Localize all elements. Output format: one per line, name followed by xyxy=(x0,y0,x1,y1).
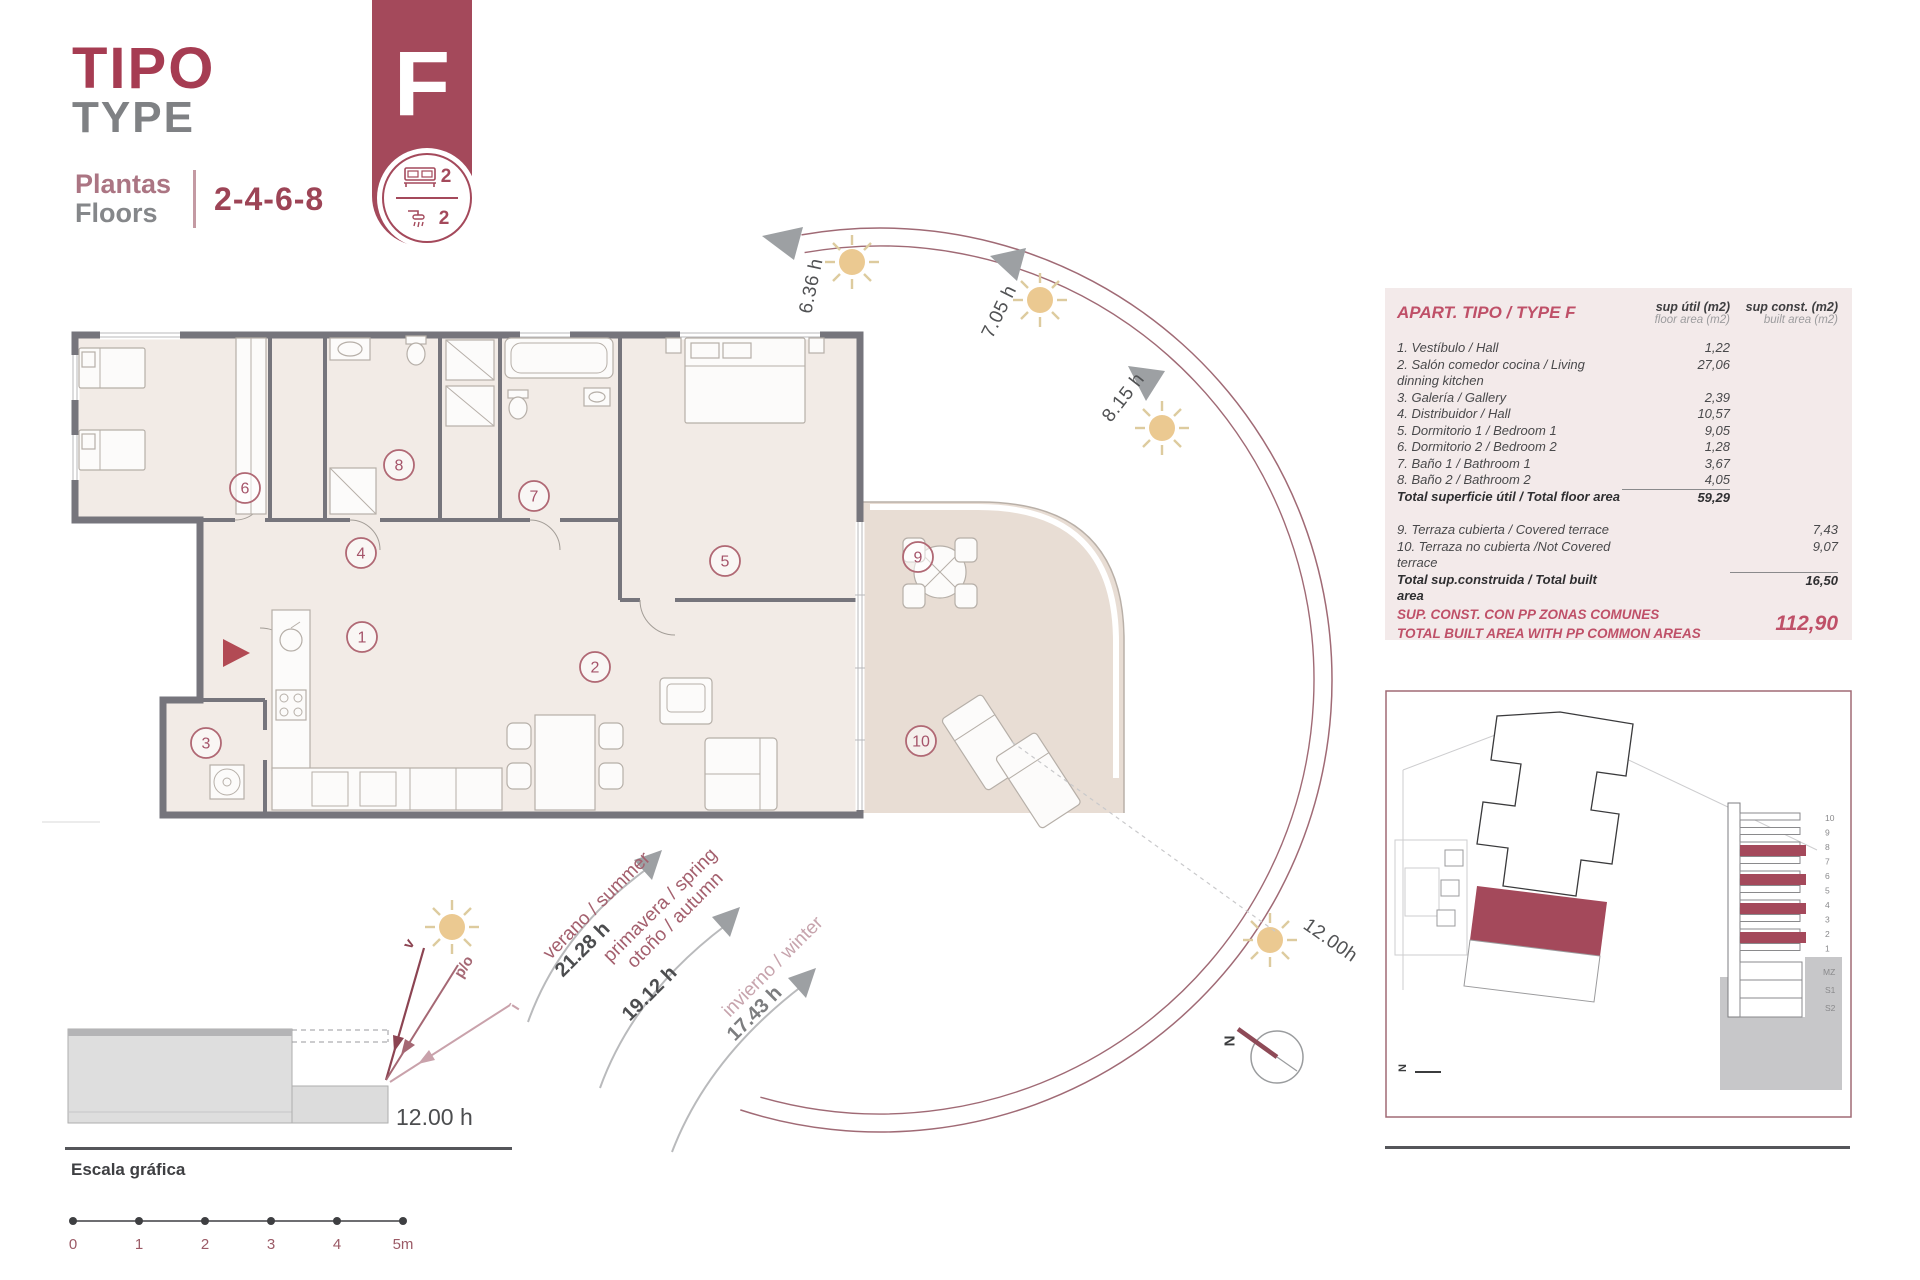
type-badge-letter: F xyxy=(372,38,472,130)
terrace-glazing xyxy=(855,522,865,810)
floor-label: 8 xyxy=(1825,842,1830,852)
floor-area-column-header: sup útil (m2) floor area (m2) xyxy=(1622,300,1730,326)
bathrooms-count: 2 xyxy=(439,208,450,230)
floor-label: 7 xyxy=(1825,857,1830,867)
podium-levels xyxy=(1740,962,1802,1017)
site-north-label: N xyxy=(1397,1064,1409,1072)
floors-label: Plantas Floors xyxy=(75,170,171,227)
floor-label: S1 xyxy=(1825,985,1836,995)
sun-icon xyxy=(1243,913,1297,967)
row-label: Total sup.construida / Total built area xyxy=(1397,572,1622,605)
table-row: 8. Baño 2 / Bathroom 24,05 xyxy=(1397,472,1838,489)
scale-tick: 5m xyxy=(393,1236,414,1253)
room-number: 10 xyxy=(912,734,930,751)
floor-label: 6 xyxy=(1825,871,1830,881)
projection-dashes xyxy=(292,1030,388,1042)
floor-label: 9 xyxy=(1825,828,1830,838)
room-label: 9 xyxy=(903,542,933,572)
floors-value: 2-4-6-8 xyxy=(214,181,324,218)
row-label: 8. Baño 2 / Bathroom 2 xyxy=(1397,472,1622,489)
table-row: 2. Salón comedor cocina / Living dinning… xyxy=(1397,357,1838,390)
common-areas-label-en: TOTAL BUILT AREA WITH PP COMMON AREAS xyxy=(1397,624,1775,644)
built-area-column-header: sup const. (m2) built area (m2) xyxy=(1730,300,1838,326)
shower-icon xyxy=(405,208,435,230)
compass-circle xyxy=(1251,1031,1303,1083)
row-label: 3. Galería / Gallery xyxy=(1397,390,1622,407)
row-label: 2. Salón comedor cocina / Living dinning… xyxy=(1397,357,1622,390)
table-row: 4. Distribuidor / Hall10,57 xyxy=(1397,406,1838,423)
area-table-header: APART. TIPO / TYPE F sup útil (m2) floor… xyxy=(1397,300,1838,326)
floor-label: 5 xyxy=(1825,886,1830,896)
table-row: 9. Terraza cubierta / Covered terrace7,4… xyxy=(1397,522,1838,539)
row-label: 10. Terraza no cubierta /Not Covered ter… xyxy=(1397,539,1622,572)
scale-tick: 0 xyxy=(69,1236,77,1253)
room-number: 2 xyxy=(591,660,600,677)
section-hour-label: 12.00 h xyxy=(396,1104,473,1131)
bathrooms-row: 2 xyxy=(405,199,450,239)
area-table: APART. TIPO / TYPE F sup útil (m2) floor… xyxy=(1385,288,1852,640)
bedrooms-count: 2 xyxy=(441,166,452,188)
bed-icon xyxy=(403,166,437,188)
room-number: 4 xyxy=(357,546,366,563)
total-built-row: Total sup.construida / Total built area1… xyxy=(1397,572,1838,605)
arrow-705 xyxy=(990,248,1026,281)
compass-needle-tail xyxy=(1277,1057,1297,1071)
compass-north-label: N xyxy=(1222,1036,1239,1047)
sun-icon xyxy=(425,900,479,954)
arrow-sunrise xyxy=(762,227,803,260)
site-plan: 10 9 8 7 6 5 4 3 2 1 MZ S1 S2 xyxy=(1385,690,1852,1118)
floor-plan: 1 2 3 4 5 6 7 8 9 10 xyxy=(60,310,1160,850)
scale-tick: 4 xyxy=(333,1236,341,1253)
floor-label: 1 xyxy=(1825,944,1830,954)
row-label: 6. Dormitorio 2 / Bedroom 2 xyxy=(1397,439,1622,456)
col-title: sup útil (m2) xyxy=(1622,300,1730,314)
scale-ticks: 0 1 2 3 4 5m xyxy=(69,1236,414,1253)
building-section xyxy=(68,1029,388,1123)
sun-icon xyxy=(825,235,879,289)
floors-label-es: Plantas xyxy=(75,170,171,199)
row-label: 9. Terraza cubierta / Covered terrace xyxy=(1397,522,1622,539)
footer-divider-right xyxy=(1385,1146,1850,1149)
floor-label: MZ xyxy=(1823,967,1835,977)
row-floor-value: 27,06 xyxy=(1622,357,1730,390)
scale-tick: 3 xyxy=(267,1236,275,1253)
total-floor-value: 59,29 xyxy=(1622,489,1730,507)
room-label: 3 xyxy=(191,728,221,758)
sun-rays xyxy=(386,948,510,1082)
room-label: 2 xyxy=(580,652,610,682)
footer-divider-left xyxy=(65,1147,512,1150)
table-row: 3. Galería / Gallery2,39 xyxy=(1397,390,1838,407)
scale-bar: 0 1 2 3 4 5m xyxy=(65,1205,445,1265)
row-label: Total superficie útil / Total floor area xyxy=(1397,489,1622,507)
row-built-value: 9,07 xyxy=(1730,539,1838,572)
room-label: 1 xyxy=(347,622,377,652)
compass-needle xyxy=(1238,1029,1277,1057)
plan-sheet: TIPO TYPE Plantas Floors 2-4-6-8 F 2 xyxy=(0,0,1920,1280)
common-areas-block: SUP. CONST. CON PP ZONAS COMUNES TOTAL B… xyxy=(1397,605,1838,644)
row-floor-value: 4,05 xyxy=(1622,472,1730,489)
common-areas-label-es: SUP. CONST. CON PP ZONAS COMUNES xyxy=(1397,605,1775,625)
common-areas-value: 112,90 xyxy=(1775,612,1838,636)
floors-block: Plantas Floors 2-4-6-8 xyxy=(75,170,324,228)
room-number: 1 xyxy=(358,630,367,647)
hour-mark-label: 12.00h xyxy=(1299,914,1362,967)
row-floor-value: 9,05 xyxy=(1622,423,1730,440)
scale-tick: 1 xyxy=(135,1236,143,1253)
row-floor-value: 1,22 xyxy=(1622,340,1730,357)
room-label: 6 xyxy=(230,473,260,503)
col-subtitle: floor area (m2) xyxy=(1622,314,1730,326)
row-floor-value: 10,57 xyxy=(1622,406,1730,423)
col-subtitle: built area (m2) xyxy=(1730,314,1838,326)
room-number: 9 xyxy=(914,550,923,567)
area-table-title: APART. TIPO / TYPE F xyxy=(1397,300,1622,323)
room-label: 4 xyxy=(346,538,376,568)
table-row: 10. Terraza no cubierta /Not Covered ter… xyxy=(1397,539,1838,572)
bedrooms-row: 2 xyxy=(403,157,452,197)
room-label: 7 xyxy=(519,481,549,511)
page-title-en: TYPE xyxy=(72,96,195,140)
room-number: 7 xyxy=(530,489,539,506)
floor-label: 4 xyxy=(1825,900,1830,910)
floor-label: 10 xyxy=(1825,813,1835,823)
room-number: 5 xyxy=(721,554,730,571)
table-row: 6. Dormitorio 2 / Bedroom 21,28 xyxy=(1397,439,1838,456)
row-label: 7. Baño 1 / Bathroom 1 xyxy=(1397,456,1622,473)
hour-mark-label: 6.36 h xyxy=(795,256,828,315)
col-title: sup const. (m2) xyxy=(1730,300,1838,314)
scale-tick: 2 xyxy=(201,1236,209,1253)
row-label: 1. Vestíbulo / Hall xyxy=(1397,340,1622,357)
compass xyxy=(1238,1029,1303,1083)
floor-label: 2 xyxy=(1825,929,1830,939)
season-label-spring-autumn: primavera / spring otoño / autumn xyxy=(599,844,737,982)
floor-label: 3 xyxy=(1825,915,1830,925)
room-label: 5 xyxy=(710,546,740,576)
scale-bar-title: Escala gráfica xyxy=(71,1160,185,1180)
total-floor-row: Total superficie útil / Total floor area… xyxy=(1397,489,1838,507)
row-floor-value: 3,67 xyxy=(1622,456,1730,473)
floor-label: S2 xyxy=(1825,1003,1836,1013)
total-built-value: 16,50 xyxy=(1730,572,1838,605)
room-number: 8 xyxy=(395,458,404,475)
floors-divider xyxy=(193,170,196,228)
row-floor-value: 1,28 xyxy=(1622,439,1730,456)
gallery-appliances xyxy=(210,765,244,799)
row-label: 5. Dormitorio 1 / Bedroom 1 xyxy=(1397,423,1622,440)
table-row: 7. Baño 1 / Bathroom 13,67 xyxy=(1397,456,1838,473)
type-badge-stats: 2 2 xyxy=(382,153,472,243)
area-rows: 1. Vestíbulo / Hall1,22 2. Salón comedor… xyxy=(1397,340,1838,605)
page-title-es: TIPO xyxy=(72,40,215,98)
floors-label-en: Floors xyxy=(75,199,171,228)
bedroom-1-furniture xyxy=(666,338,824,423)
row-built-value: 7,43 xyxy=(1730,522,1838,539)
table-row: 1. Vestíbulo / Hall1,22 xyxy=(1397,340,1838,357)
room-number: 6 xyxy=(241,481,250,498)
room-number: 3 xyxy=(202,736,211,753)
room-label: 8 xyxy=(384,450,414,480)
row-floor-value: 2,39 xyxy=(1622,390,1730,407)
room-label: 10 xyxy=(906,726,936,756)
row-label: 4. Distribuidor / Hall xyxy=(1397,406,1622,423)
table-row: 5. Dormitorio 1 / Bedroom 19,05 xyxy=(1397,423,1838,440)
